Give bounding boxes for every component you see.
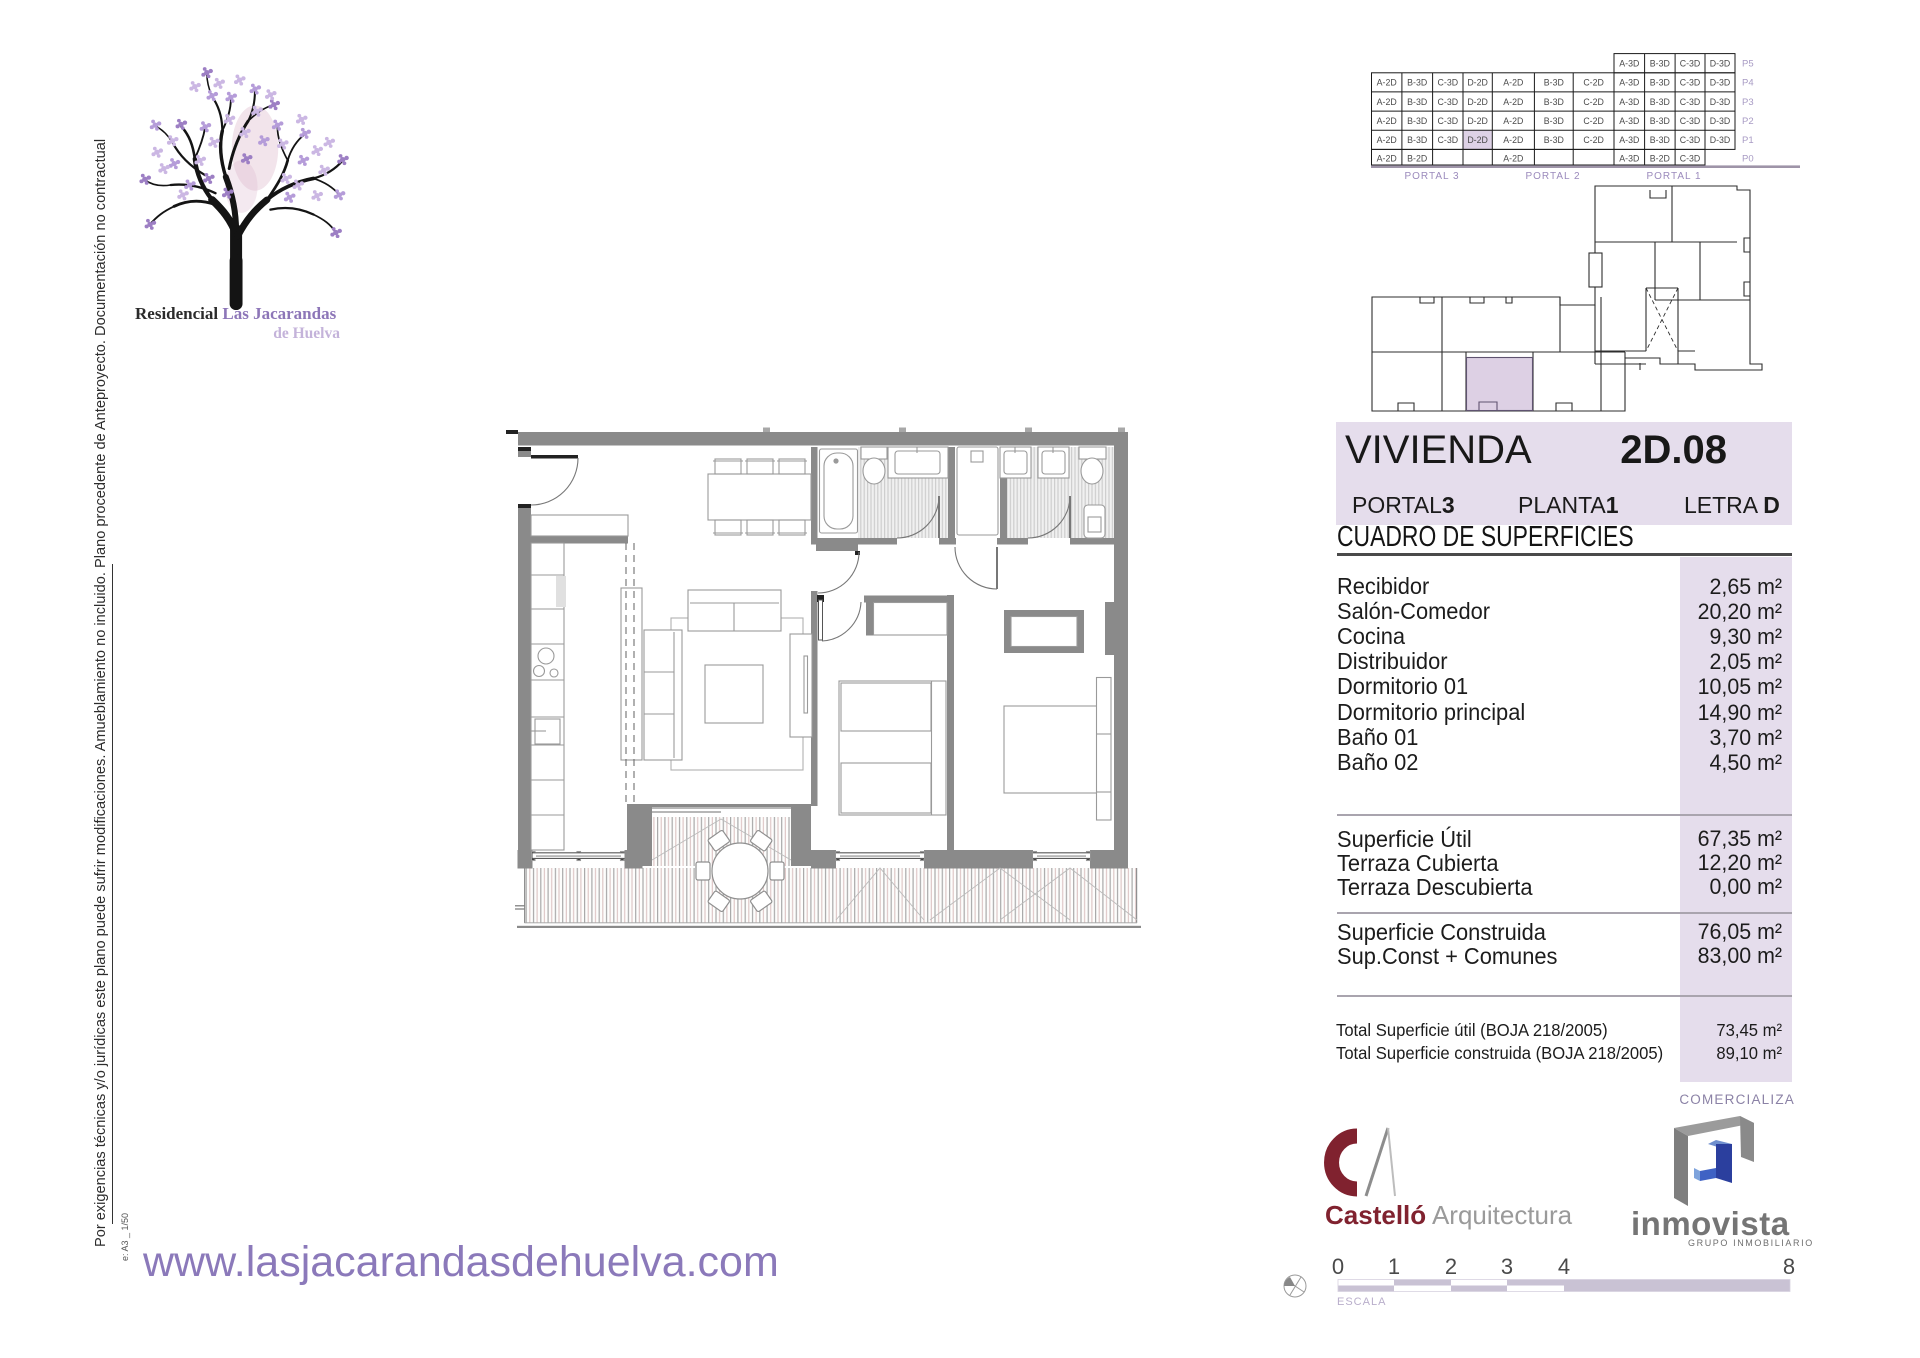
svg-text:3: 3: [1501, 1254, 1513, 1279]
svg-text:C-2D: C-2D: [1583, 78, 1604, 88]
svg-text:0: 0: [1332, 1254, 1344, 1279]
svg-text:A-2D: A-2D: [1503, 78, 1523, 88]
svg-text:B-3D: B-3D: [1544, 78, 1564, 88]
svg-text:C-3D: C-3D: [1680, 78, 1701, 88]
svg-text:B-3D: B-3D: [1407, 78, 1427, 88]
svg-text:A-3D: A-3D: [1619, 78, 1639, 88]
svg-text:C-3D: C-3D: [1680, 58, 1701, 68]
svg-text:B-3D: B-3D: [1650, 58, 1670, 68]
svg-text:P2: P2: [1742, 116, 1754, 127]
svg-text:B-3D: B-3D: [1650, 78, 1670, 88]
svg-text:P0: P0: [1742, 153, 1754, 164]
svg-text:D-3D: D-3D: [1710, 78, 1731, 88]
svg-text:P5: P5: [1742, 58, 1754, 69]
svg-text:A-2D: A-2D: [1503, 153, 1523, 163]
svg-text:ESCALA: ESCALA: [1337, 1296, 1386, 1308]
svg-text:8: 8: [1783, 1254, 1795, 1279]
svg-text:2: 2: [1445, 1254, 1457, 1279]
svg-text:B-2D: B-2D: [1407, 153, 1427, 163]
svg-text:A-3D: A-3D: [1619, 58, 1639, 68]
svg-text:4: 4: [1558, 1254, 1570, 1279]
svg-text:P1: P1: [1742, 135, 1754, 146]
svg-text:A-2D: A-2D: [1377, 153, 1397, 163]
svg-text:D-3D: D-3D: [1710, 58, 1731, 68]
svg-text:P4: P4: [1742, 78, 1754, 89]
svg-text:1: 1: [1388, 1254, 1400, 1279]
svg-text:B-2D: B-2D: [1650, 153, 1670, 163]
svg-text:C-3D: C-3D: [1680, 153, 1701, 163]
svg-text:P3: P3: [1742, 97, 1754, 108]
svg-text:A-3D: A-3D: [1619, 153, 1639, 163]
svg-text:C-3D: C-3D: [1438, 78, 1459, 88]
svg-text:D-2D: D-2D: [1467, 78, 1488, 88]
svg-text:A-2D: A-2D: [1377, 78, 1397, 88]
